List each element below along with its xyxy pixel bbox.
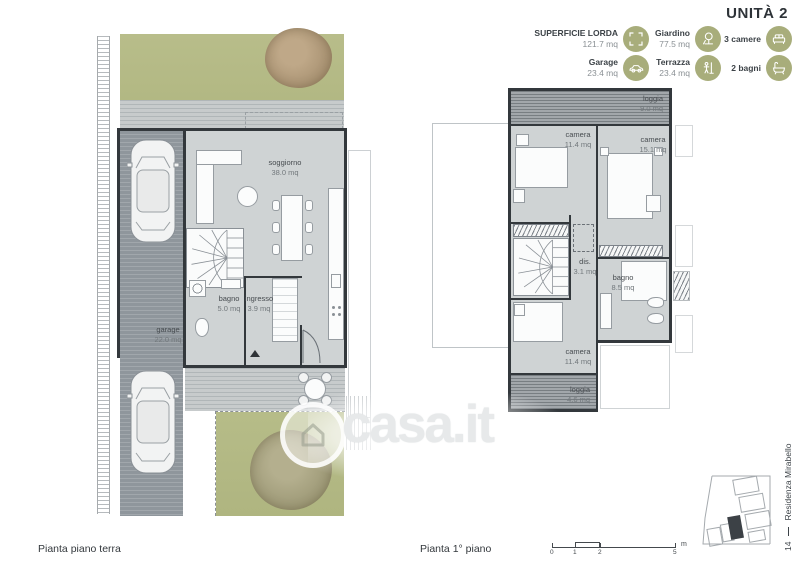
site-key-plan — [700, 472, 774, 548]
legend-item-superficie: SUPERFICIE LORDA 121.7 mq — [500, 26, 649, 52]
ff-bidet — [647, 313, 664, 324]
first-floor-plan: loggia 9.0 mq camera 11.4 mq camera 15.1… — [425, 85, 745, 485]
legend-item-camere: 3 camere — [706, 26, 792, 52]
legend-value: 23.4 mq — [630, 68, 690, 79]
ff-wall-bagno-top — [598, 257, 669, 259]
ff-spiral-staircase — [513, 237, 569, 297]
gf-kitchen-sink — [331, 274, 341, 288]
ff-bath-sink-cabinet — [600, 293, 612, 329]
caption-first-floor: Pianta 1° piano — [420, 543, 491, 555]
gf-kitchen-counter — [328, 188, 344, 340]
gf-terrace-chair — [321, 372, 332, 383]
gf-toilet — [195, 318, 209, 337]
ff-toilet — [647, 297, 664, 308]
gf-terrace-chair — [298, 372, 309, 383]
gf-neighbor-hatch — [346, 396, 373, 450]
ground-floor-plan: soggiorno 38.0 mq bagno 5.0 mq ingresso … — [95, 28, 380, 520]
gf-neighbor-outline — [348, 150, 371, 418]
ff-wall-loggia-bottom-sep — [511, 373, 596, 375]
gf-car-driveway — [127, 366, 179, 478]
legend-label: SUPERFICIE LORDA — [500, 28, 618, 39]
ff-furniture-camera1 — [513, 189, 525, 203]
room-label-dis: dis. 3.1 mq — [565, 257, 605, 277]
legend-label: Giardino — [630, 28, 690, 39]
gf-dining-chair — [305, 200, 313, 211]
room-label-camera1: camera 11.4 mq — [550, 130, 606, 150]
gf-dining-table — [281, 195, 303, 261]
gf-garage-wall-top — [117, 128, 183, 131]
legend-label: Terrazza — [630, 57, 690, 68]
gf-dining-chair — [272, 222, 280, 233]
ff-pillow-camera3 — [514, 304, 525, 316]
room-label-bagno-ff: bagno 8.5 mq — [601, 273, 645, 293]
gf-coffee-table — [237, 186, 258, 207]
ff-bed-camera1 — [515, 147, 568, 188]
legend-label: 2 bagni — [706, 63, 761, 74]
gf-tree-bottom — [250, 430, 332, 510]
legend-value: 77.5 mq — [630, 39, 690, 50]
legend-value: 23.4 mq — [542, 68, 618, 79]
gf-dining-chair — [272, 200, 280, 211]
room-label-loggia-top: loggia 9.0 mq — [603, 94, 663, 114]
gf-washing-machine — [189, 280, 206, 297]
gf-dining-chair — [305, 244, 313, 255]
scale-unit-label: m — [681, 541, 687, 548]
ff-wall-right — [669, 88, 672, 343]
ff-wall-bottom — [508, 409, 598, 412]
gf-wall-right — [344, 128, 347, 368]
gf-wall-bagno-divider — [244, 276, 246, 365]
legend-item-bagni: 2 bagni — [706, 55, 792, 81]
project-name: Residenza Mirabello — [783, 444, 793, 521]
ff-dis-dotted-zone — [573, 224, 594, 252]
room-label-ingresso: ingresso 3.9 mq — [237, 294, 281, 314]
ff-pillow-camera1 — [516, 134, 529, 146]
scale-bar-tick — [675, 543, 676, 548]
ff-wall-top — [508, 88, 672, 91]
ff-wardrobe-camera1 — [513, 224, 569, 237]
ff-wall-loggia-top-sep — [511, 124, 669, 126]
gf-sofa-top — [196, 150, 242, 165]
gf-dining-chair — [272, 244, 280, 255]
legend-value: 121.7 mq — [500, 39, 618, 50]
scale-tick-label: 2 — [598, 549, 602, 556]
sidebar-vertical-text: 14 Residenza Mirabello — [783, 444, 793, 551]
legend-label: 3 camere — [706, 34, 761, 45]
gf-wall-top — [183, 128, 347, 131]
gf-entrance-arrow — [250, 350, 260, 357]
scale-bar-segment — [575, 542, 600, 547]
gf-property-boundary-hatch — [97, 36, 110, 514]
caption-ground-floor: Pianta piano terra — [38, 543, 121, 555]
gf-terrace-chair — [321, 395, 332, 406]
page-number: 14 — [783, 542, 793, 551]
ff-neighbor-outline-2 — [675, 225, 693, 267]
ff-adjacent-volume-outline — [432, 123, 509, 348]
gf-terrace-chair — [298, 395, 309, 406]
gf-dining-chair — [305, 222, 313, 233]
gf-kitchen-burners — [332, 306, 335, 309]
room-label-garage: garage 22.0 mq — [148, 325, 188, 345]
gf-garage-wall-left — [117, 128, 120, 358]
scale-tick-label: 0 — [550, 549, 554, 556]
scale-tick-label: 5 — [673, 549, 677, 556]
ff-wall-partition-center — [596, 126, 598, 340]
sidebar-divider — [788, 527, 789, 536]
gf-bathroom-sink — [221, 279, 241, 289]
scale-tick-label: 1 — [573, 549, 577, 556]
scale-bar-line — [552, 547, 676, 548]
ff-wall-bagno-bottom — [596, 340, 672, 343]
ff-wall-left — [508, 88, 511, 412]
page-title: UNITÀ 2 — [726, 5, 788, 22]
legend-label: Garage — [542, 57, 618, 68]
gf-car-top — [127, 136, 179, 246]
scale-bar-tick — [600, 543, 601, 548]
ff-exterior-stair-hatch — [673, 271, 690, 301]
room-label-soggiorno: soggiorno 38.0 mq — [245, 158, 325, 178]
scale-bar-tick — [552, 543, 553, 548]
ff-furniture-camera2 — [646, 195, 661, 212]
gf-deck-dashed-edge — [245, 112, 343, 129]
bathtub-icon — [766, 55, 792, 81]
ff-wall-camera3-top — [511, 298, 569, 300]
ff-neighbor-outline-3 — [675, 315, 693, 353]
ff-exterior-bottom-right — [600, 345, 670, 409]
bed-icon — [766, 26, 792, 52]
room-label-loggia-bottom: loggia 4.6 mq — [538, 385, 590, 405]
gf-tree-top — [265, 28, 332, 88]
room-label-camera2: camera 15.1 mq — [625, 135, 681, 155]
gf-entry-door-swing — [300, 328, 322, 365]
ff-wardrobe-camera2 — [599, 245, 663, 257]
scale-bar: 0 1 2 5 m — [548, 536, 690, 556]
room-label-camera3: camera 11.4 mq — [550, 347, 606, 367]
floorplan-page: UNITÀ 2 SUPERFICIE LORDA 121.7 mq Giardi… — [0, 0, 800, 566]
